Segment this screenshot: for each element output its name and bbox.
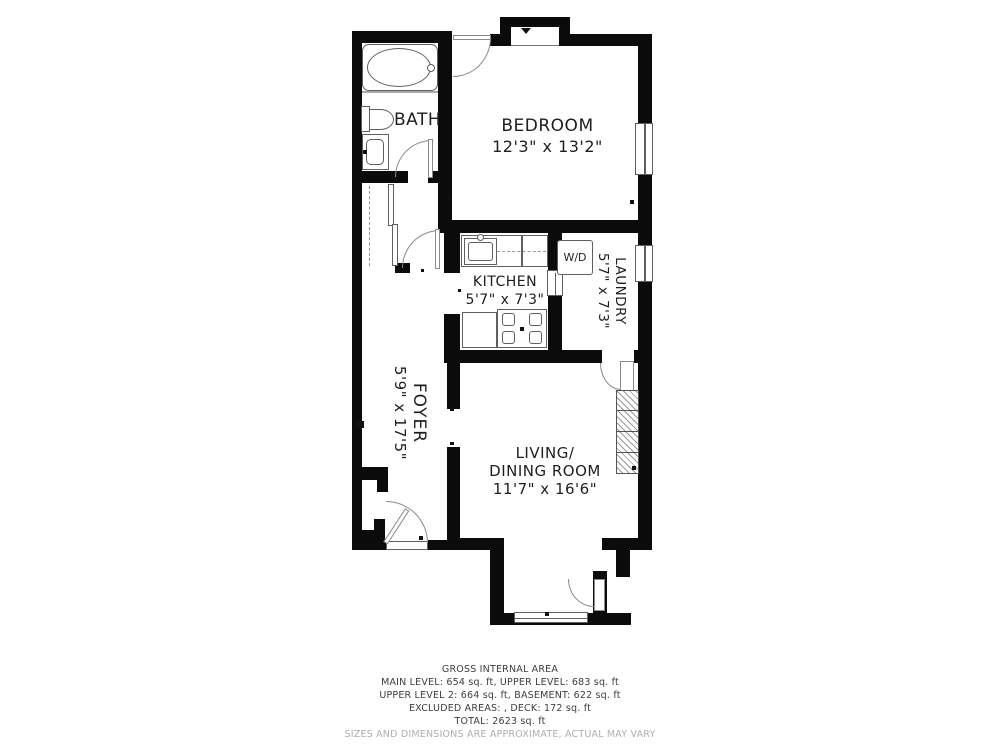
toilet-bowl [369, 109, 394, 130]
kitchen-sink-basin [468, 242, 493, 261]
area-summary-disclaimer: SIZES AND DIMENSIONS ARE APPROXIMATE, AC… [0, 728, 1000, 741]
laundry-living-door-arc [600, 363, 621, 390]
wall-foyer-living-upper [447, 363, 460, 409]
rear-door-leaf [594, 579, 605, 611]
living-label: LIVING/ DINING ROOM 11'7" x 16'6" [465, 445, 625, 499]
living-name-1: LIVING/ [465, 445, 625, 463]
wall-bottomright-horizontal [602, 538, 652, 550]
north-marker-icon [521, 28, 531, 34]
wall-tick [421, 269, 424, 272]
bath-sink-faucet-icon [363, 150, 367, 154]
washer-dryer-label: W/D [563, 251, 586, 264]
bedroom-label: BEDROOM 12'3" x 13'2" [460, 116, 635, 157]
wall-living-top-right [634, 350, 652, 363]
area-summary-line: MAIN LEVEL: 654 sq. ft, UPPER LEVEL: 683… [0, 676, 1000, 689]
wall-tick [630, 200, 634, 204]
wall-bath-bedroom [438, 31, 452, 233]
bedroom-door-arc [453, 38, 491, 77]
kitchen-counter-divider [521, 235, 523, 267]
closet-slider-door-1 [388, 184, 394, 226]
kitchen-name: KITCHEN [446, 274, 564, 291]
wall-tick [450, 408, 454, 411]
bathtub-faucet-icon [427, 64, 435, 72]
foyer-dims: 5'9" x 17'5" [390, 351, 408, 475]
bedroom-name: BEDROOM [460, 116, 635, 136]
living-name-2: DINING ROOM [465, 463, 625, 481]
wall-kitchen-left-upper [444, 233, 460, 273]
closet-slider-door-2 [392, 224, 398, 266]
stove-burner-4 [529, 331, 542, 344]
living-dims: 11'7" x 16'6" [465, 481, 625, 499]
stove-center-dot [520, 327, 524, 331]
wall-tick [357, 421, 364, 428]
wall-tick [450, 442, 454, 445]
wall-nook-right [559, 17, 570, 39]
bedroom-window [635, 123, 653, 175]
bath-sink-basin [366, 139, 384, 165]
floorplan-image: W/D BATH BEDROOM 12'3" x 13'2" KITCHEN 5… [0, 0, 1000, 750]
wall-tick [545, 612, 549, 616]
wall-tick [447, 197, 450, 200]
living-window [514, 612, 588, 623]
area-summary-line: TOTAL: 2623 sq. ft [0, 715, 1000, 728]
foyer-label: FOYER 5'9" x 17'5" [387, 351, 429, 475]
wall-foyer-living-lower [447, 447, 460, 540]
area-summary: GROSS INTERNAL AREA MAIN LEVEL: 654 sq. … [0, 663, 1000, 741]
area-summary-line: UPPER LEVEL 2: 664 sq. ft, BASEMENT: 622… [0, 689, 1000, 702]
laundry-dims: 5'7" x 7'3" [594, 235, 610, 347]
kitchen-faucet-icon [477, 234, 484, 241]
area-summary-title: GROSS INTERNAL AREA [0, 663, 1000, 676]
bath-label: BATH [394, 110, 444, 130]
wall-tick [419, 536, 423, 540]
kitchen-cabinet [462, 312, 497, 348]
wall-bath-top [352, 31, 452, 43]
stove-burner-2 [529, 313, 542, 326]
bedroom-door-leaf [453, 35, 491, 40]
wall-living-top-left [447, 350, 602, 363]
laundry-living-door-leaf [620, 361, 634, 392]
bedroom-dims: 12'3" x 13'2" [460, 138, 635, 157]
bath-door-leaf [428, 139, 433, 178]
bath-divider-line [362, 91, 438, 93]
wall-tick [632, 466, 636, 470]
bath-door-arc [395, 140, 432, 177]
wall-bottomright-vertical [616, 550, 630, 577]
wall-living-right [638, 363, 652, 550]
wall-bedroom-bottom [438, 220, 652, 233]
laundry-window [635, 245, 653, 282]
closet-rod-line [369, 186, 370, 266]
stove-burner-3 [502, 331, 515, 344]
nook-opening [511, 27, 559, 46]
laundry-name: LAUNDRY [611, 235, 627, 347]
stove-burner-1 [502, 313, 515, 326]
hall-door-leaf [435, 229, 440, 269]
area-summary-line: EXCLUDED AREAS: , DECK: 172 sq. ft [0, 702, 1000, 715]
bathtub-basin [367, 48, 431, 87]
foyer-name: FOYER [409, 351, 429, 475]
rear-door-arc [568, 579, 594, 607]
kitchen-label: KITCHEN 5'7" x 7'3" [446, 274, 564, 308]
kitchen-dims: 5'7" x 7'3" [446, 292, 564, 309]
laundry-label: LAUNDRY 5'7" x 7'3" [591, 235, 627, 347]
wall-extension-left [490, 538, 504, 625]
washer-dryer: W/D [557, 240, 593, 275]
